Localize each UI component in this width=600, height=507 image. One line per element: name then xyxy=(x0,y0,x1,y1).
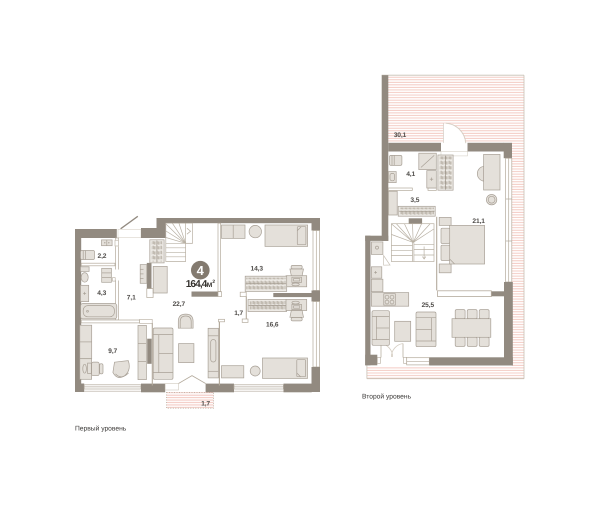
svg-text:21,1: 21,1 xyxy=(472,218,485,225)
svg-text:1,7: 1,7 xyxy=(201,401,210,408)
svg-text:164,4: 164,4 xyxy=(186,279,208,290)
svg-text:2: 2 xyxy=(212,279,215,285)
svg-text:4,1: 4,1 xyxy=(406,171,415,178)
svg-text:7,1: 7,1 xyxy=(127,294,136,301)
svg-text:25,5: 25,5 xyxy=(422,302,435,309)
svg-text:1,7: 1,7 xyxy=(234,310,243,317)
svg-text:9,7: 9,7 xyxy=(108,348,117,355)
svg-text:2,2: 2,2 xyxy=(98,253,107,260)
svg-text:14,3: 14,3 xyxy=(251,265,264,272)
svg-text:4,3: 4,3 xyxy=(97,290,106,297)
svg-text:Первый уровень: Первый уровень xyxy=(75,426,127,433)
svg-text:Второй уровень: Второй уровень xyxy=(362,394,412,401)
svg-text:3,5: 3,5 xyxy=(410,197,419,204)
svg-text:16,6: 16,6 xyxy=(266,321,279,328)
svg-text:4: 4 xyxy=(197,263,205,278)
svg-text:30,1: 30,1 xyxy=(394,132,407,139)
svg-text:22,7: 22,7 xyxy=(173,301,186,308)
